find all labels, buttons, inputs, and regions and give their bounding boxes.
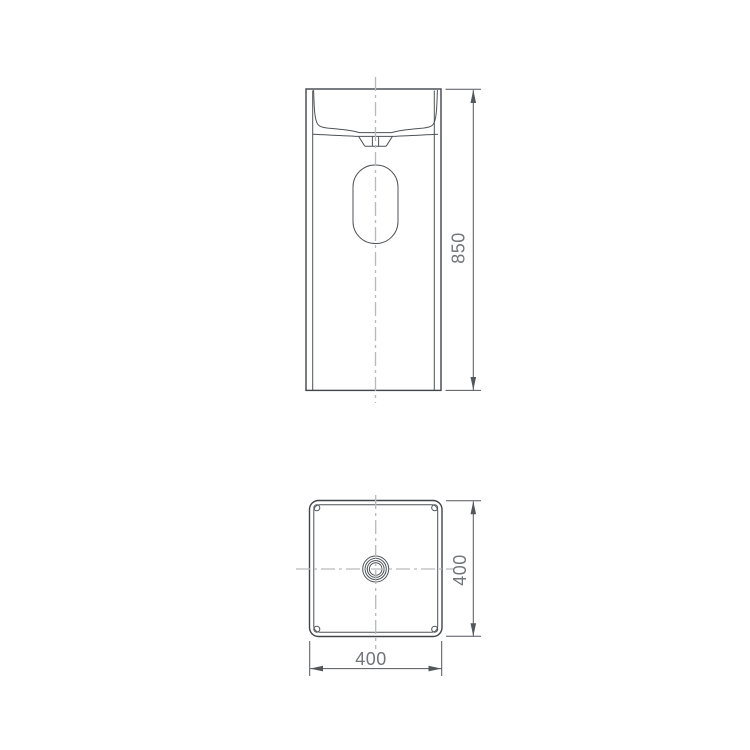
technical-drawing: 850 400 [0, 0, 750, 750]
front-pedestal-outline [306, 89, 441, 390]
front-deck-line-left [313, 134, 358, 136]
drain-taper-left [359, 136, 365, 146]
arrow-right-icon [429, 666, 442, 672]
arrow-left-icon [310, 666, 323, 672]
arrow-up-icon [471, 90, 477, 103]
plan-view [296, 495, 455, 649]
arrow-down-icon [471, 623, 477, 636]
height-dimension-label: 850 [449, 232, 469, 264]
front-view [306, 77, 441, 403]
dimension-height: 850 [446, 89, 482, 390]
drain-taper-right [386, 136, 392, 146]
arrow-down-icon [471, 377, 477, 390]
depth-dimension-label: 400 [450, 554, 470, 586]
arrow-up-icon [471, 501, 477, 514]
front-deck-line-right [393, 134, 438, 136]
dimension-depth: 400 [446, 501, 481, 637]
width-dimension-label: 400 [355, 649, 387, 669]
